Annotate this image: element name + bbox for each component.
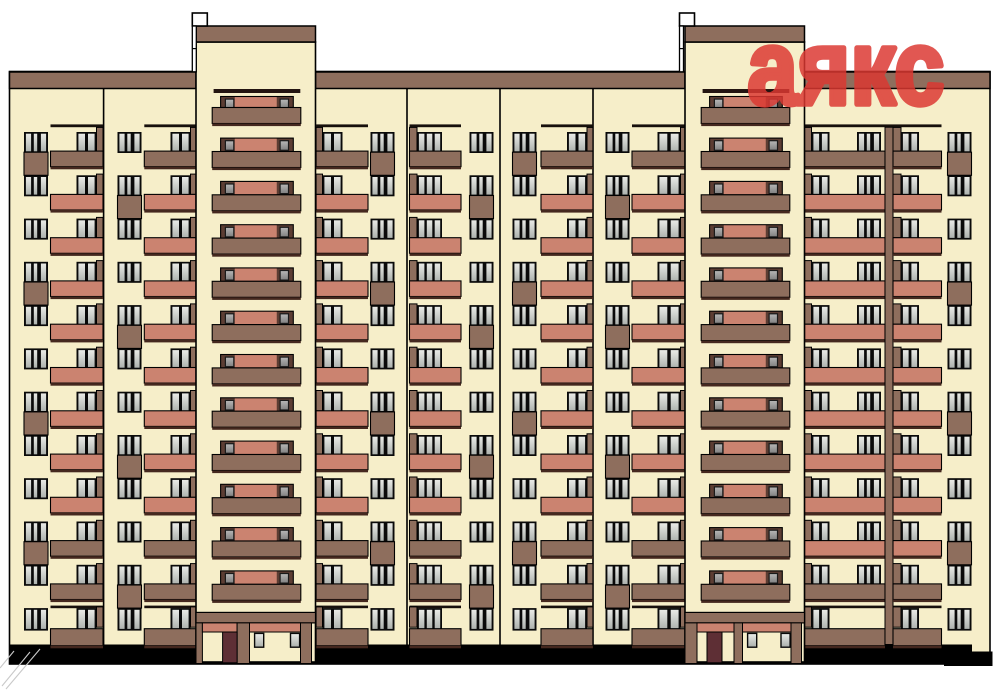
svg-text:аякс: аякс xyxy=(748,9,945,127)
